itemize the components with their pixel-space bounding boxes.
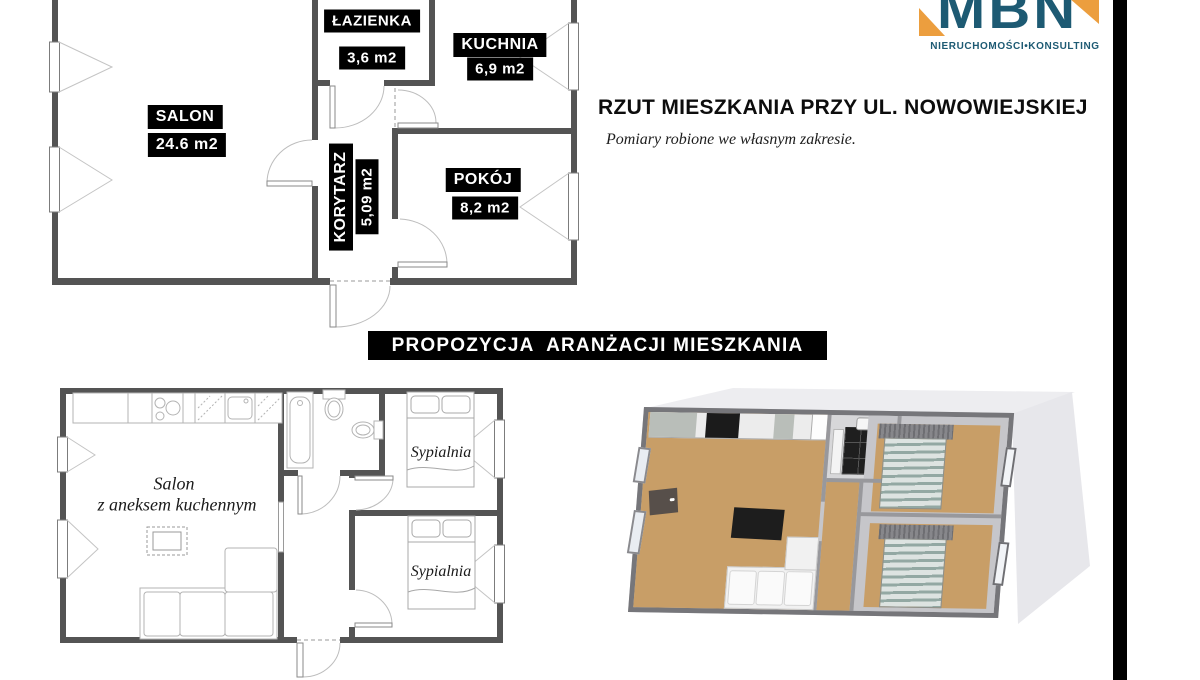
mbn-logo: MBN NIERUCHOMOŚCI•KONSULTING bbox=[917, 0, 1113, 56]
3d-black-rug bbox=[731, 507, 785, 540]
page-title: RZUT MIESZKANIA PRZY UL. NOWOWIEJSKIEJ bbox=[598, 96, 1088, 120]
salon-table bbox=[147, 527, 187, 555]
3d-sofa bbox=[724, 566, 817, 610]
3d-entry-door bbox=[649, 488, 678, 516]
page-subtitle: Pomiary robione we własnym zakresie. bbox=[606, 131, 856, 149]
bedroom-label-top: Sypialnia bbox=[411, 444, 471, 462]
right-edge-bar bbox=[1113, 0, 1127, 680]
salon-annex-label-line1: Salon bbox=[153, 474, 194, 495]
bidet bbox=[352, 421, 383, 439]
floorplan-page: RZUT MIESZKANIA PRZY UL. NOWOWIEJSKIEJ P… bbox=[0, 0, 1200, 680]
logo-text: MBN bbox=[937, 0, 1078, 41]
3d-bed-top bbox=[879, 438, 947, 510]
bedroom-label-bottom: Sypialnia bbox=[411, 563, 471, 581]
arrangement-banner: PROPOZYCJA ARANŻACJI MIESZKANIA bbox=[368, 331, 827, 360]
bottom-plan-doors bbox=[297, 476, 393, 677]
3d-kitchen-counter bbox=[648, 412, 827, 441]
logo-tagline: NIERUCHOMOŚCI•KONSULTING bbox=[917, 41, 1113, 52]
salon-annex-label-line2: z aneksem kuchennym bbox=[98, 495, 257, 516]
room-label-salon: SALON bbox=[148, 105, 223, 129]
room-area-kuchnia: 6,9 m2 bbox=[467, 58, 533, 81]
room-label-korytarz: KORYTARZ bbox=[329, 143, 353, 250]
3d-apartment bbox=[628, 407, 1014, 618]
3d-sofa-chaise bbox=[784, 537, 819, 571]
salon-sofa bbox=[140, 548, 277, 639]
room-area-lazienka: 3,6 m2 bbox=[339, 47, 405, 70]
room-label-pokoj: POKÓJ bbox=[446, 168, 521, 192]
kitchen-annex-counter bbox=[73, 393, 282, 423]
room-area-salon: 24.6 m2 bbox=[148, 133, 226, 157]
toilet bbox=[323, 390, 345, 420]
room-label-lazienka: ŁAZIENKA bbox=[324, 10, 420, 33]
room-label-kuchnia: KUCHNIA bbox=[453, 33, 546, 57]
bathtub bbox=[287, 392, 313, 468]
room-area-pokoj: 8,2 m2 bbox=[452, 197, 518, 220]
bed-top bbox=[407, 392, 474, 487]
3d-visualization bbox=[620, 383, 1100, 645]
salon-passage-frame bbox=[279, 502, 284, 552]
3d-bed-bottom bbox=[879, 538, 947, 608]
room-area-korytarz: 5,09 m2 bbox=[356, 160, 379, 235]
bottom-plan-door-gaps bbox=[276, 469, 356, 644]
